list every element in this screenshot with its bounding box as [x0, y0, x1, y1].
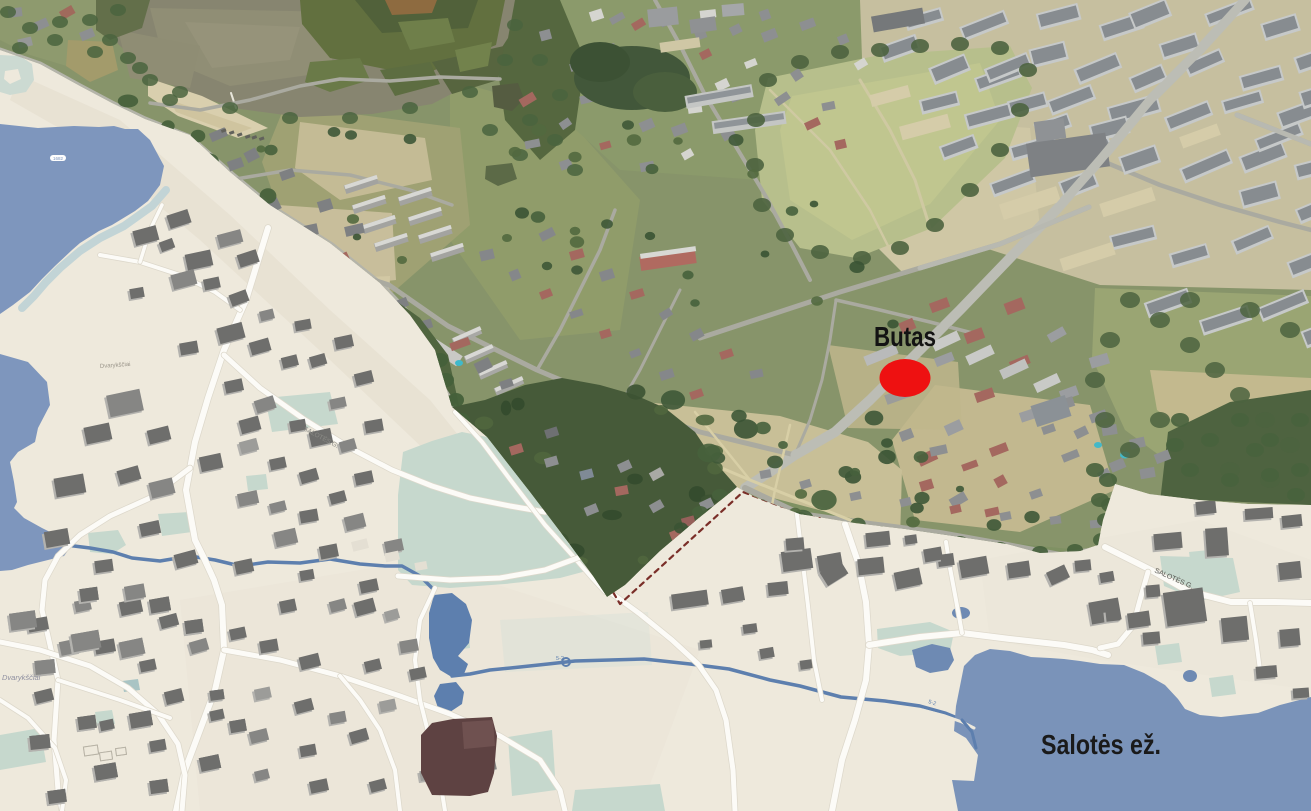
svg-text:5-2: 5-2: [556, 656, 564, 662]
svg-text:Dvarykščiai: Dvarykščiai: [2, 673, 41, 682]
svg-text:1682: 1682: [53, 156, 64, 161]
svg-text:Salotės ež.: Salotės ež.: [1041, 729, 1161, 760]
svg-text:Butas: Butas: [874, 321, 936, 352]
